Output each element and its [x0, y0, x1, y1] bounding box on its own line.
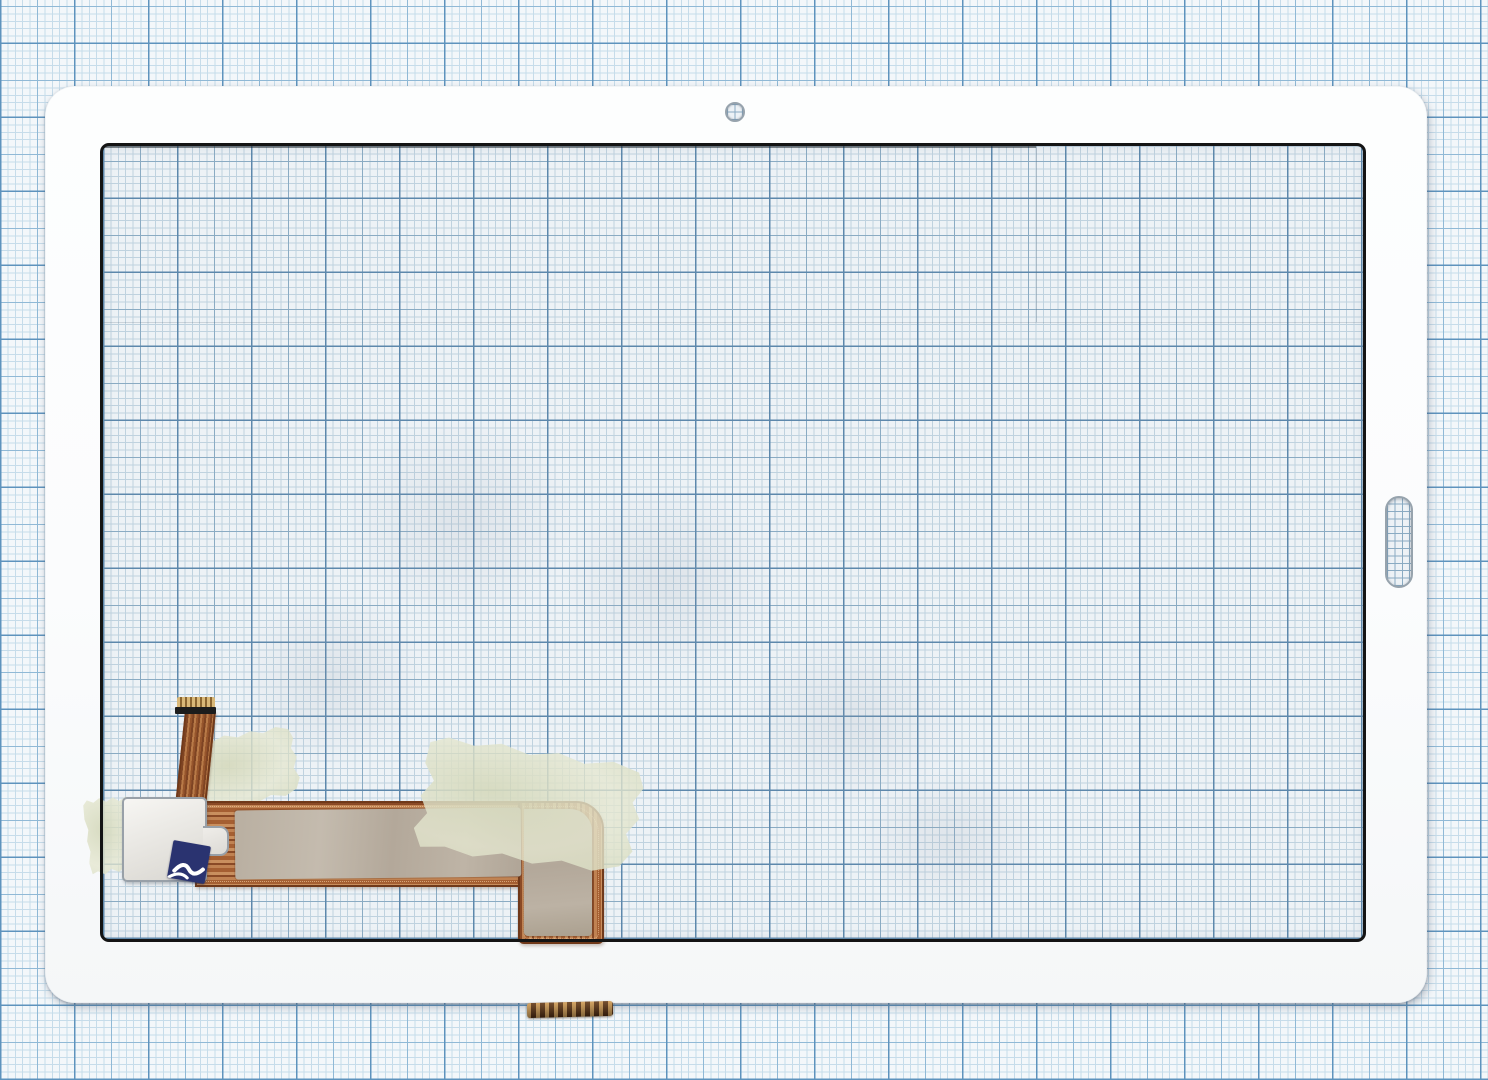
front-camera-hole [725, 102, 745, 122]
printed-window-border [100, 143, 1366, 942]
home-button-slot [1385, 496, 1413, 588]
scan-of-tablet-digitizer-on-graph-paper [0, 0, 1488, 1080]
connector-tail [527, 1001, 613, 1018]
